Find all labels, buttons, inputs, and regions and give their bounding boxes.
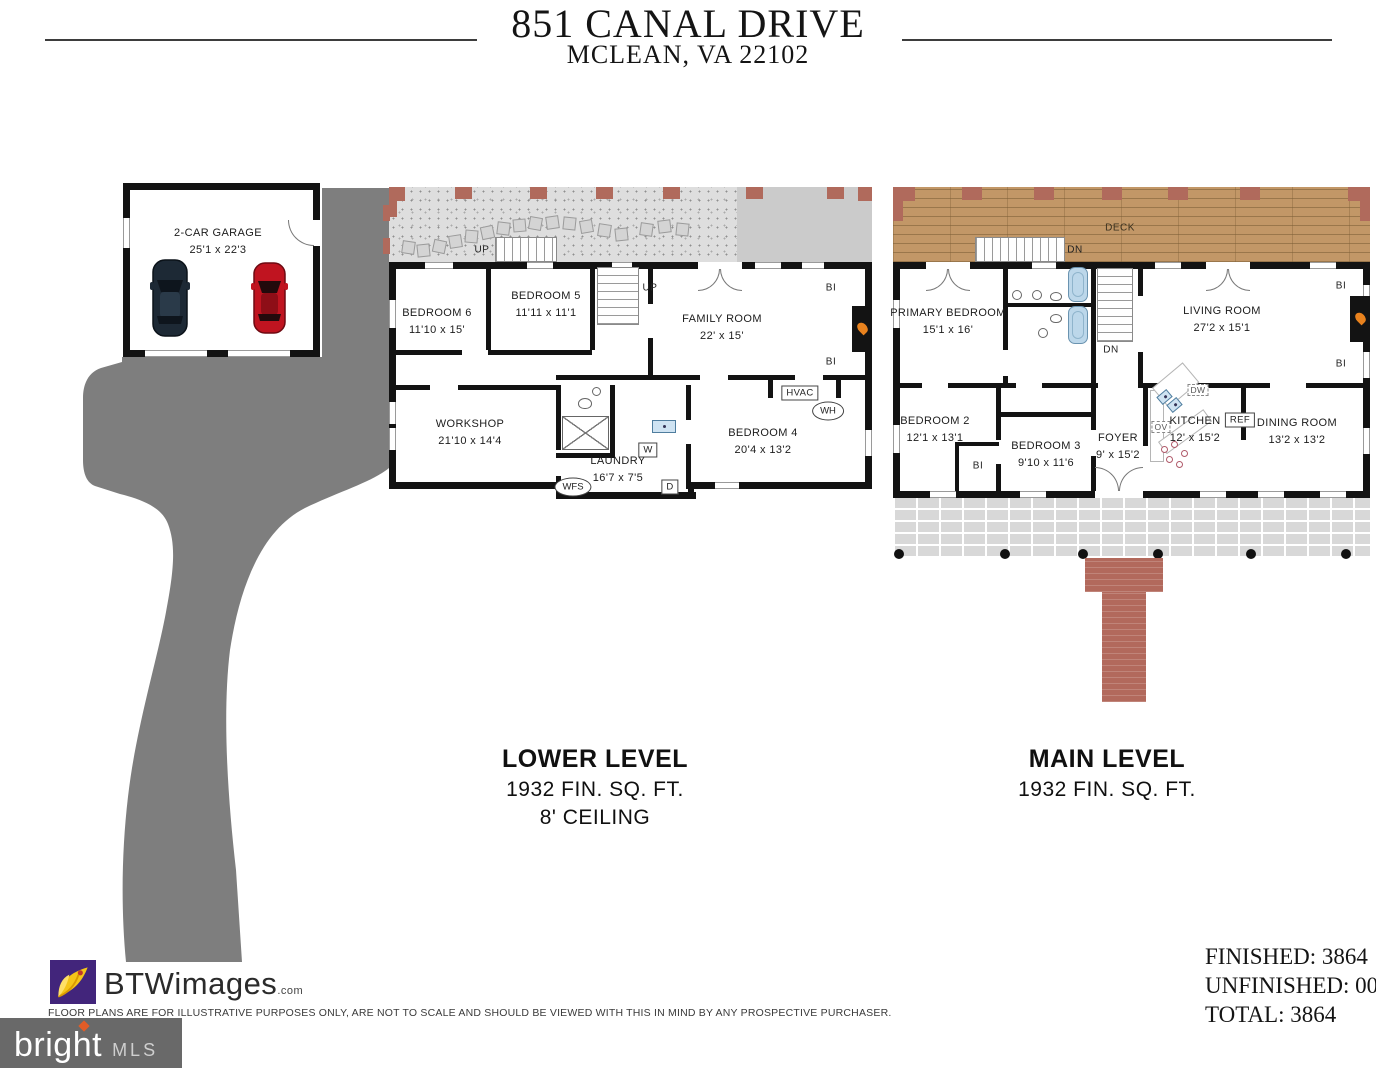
stepping-stone — [657, 219, 671, 233]
stepping-stone — [448, 234, 463, 249]
wall — [1138, 262, 1143, 296]
utility-sink — [652, 420, 676, 433]
window — [865, 430, 872, 456]
room-label: LAUNDRY 16'7 x 7'5 — [590, 453, 645, 487]
garage-label: 2-CAR GARAGE 25'1 x 22'3 — [174, 225, 262, 259]
brick-pillar — [1034, 187, 1054, 200]
window — [1363, 428, 1370, 454]
oven-tag: OV — [1151, 421, 1170, 433]
cooktop-burner — [1166, 456, 1173, 463]
window — [123, 218, 130, 248]
porch-column-dot — [1000, 549, 1010, 559]
hvac-tag: HVAC — [781, 386, 818, 401]
up-label: UP — [475, 245, 490, 256]
window — [1032, 262, 1056, 269]
window — [389, 428, 396, 450]
door-gap — [922, 383, 948, 388]
window — [715, 482, 739, 489]
dishwasher-tag: DW — [1188, 384, 1209, 396]
room-name: 2-CAR GARAGE — [174, 225, 262, 242]
bright-mls-logo: bright MLS — [0, 1018, 182, 1068]
finished-total: FINISHED: 3864 — [1205, 943, 1376, 972]
bathtub — [1068, 306, 1088, 344]
door-gap — [1270, 383, 1306, 388]
refrigerator-tag: REF — [1225, 413, 1255, 428]
brick-pillar — [530, 187, 547, 199]
window — [1200, 491, 1226, 498]
door-gap — [795, 375, 823, 380]
window — [1258, 491, 1284, 498]
room-dims: 9' x 15'2 — [1096, 447, 1140, 464]
washer-tag: W — [638, 443, 657, 458]
cooktop-burner — [1161, 446, 1168, 453]
level-area: 1932 FIN. SQ. FT. — [1018, 778, 1196, 802]
room-dims: 12'1 x 13'1 — [900, 430, 970, 447]
wall — [955, 442, 959, 491]
room-label: FAMILY ROOM 22' x 15' — [682, 311, 762, 345]
room-label: FOYER 9' x 15'2 — [1096, 430, 1140, 464]
window — [1020, 491, 1046, 498]
stepping-stone — [597, 223, 612, 238]
built-in-label: BI — [826, 283, 836, 294]
sink — [1032, 290, 1042, 300]
room-name: PRIMARY BEDROOM — [890, 305, 1006, 322]
room-name: WORKSHOP — [436, 416, 505, 433]
window — [802, 262, 824, 269]
room-label: WORKSHOP 21'10 x 14'4 — [436, 416, 505, 450]
brick-pillar — [383, 205, 390, 221]
door-gap — [430, 385, 458, 390]
room-name: LIVING ROOM — [1183, 303, 1261, 320]
room-name: FOYER — [1096, 430, 1140, 447]
square-footage-totals: FINISHED: 3864 UNFINISHED: 000 TOTAL: 38… — [1205, 943, 1376, 1029]
room-label: BEDROOM 3 9'10 x 11'6 — [1011, 438, 1081, 472]
room-dims: 11'11 x 11'1 — [511, 305, 581, 322]
porch-column-dot — [1341, 549, 1351, 559]
room-dims: 9'10 x 11'6 — [1011, 455, 1081, 472]
front-walkway — [1102, 592, 1146, 702]
brick-pillar — [389, 187, 397, 217]
built-in-label: BI — [826, 357, 836, 368]
room-name: BEDROOM 2 — [900, 413, 970, 430]
toilet — [1050, 292, 1062, 301]
brick-pillar — [663, 187, 680, 199]
wall — [1091, 262, 1096, 388]
built-in-label: BI — [973, 461, 983, 472]
room-name: BEDROOM 4 — [728, 425, 798, 442]
wall — [486, 262, 491, 352]
toilet — [578, 398, 592, 409]
stepping-stone — [639, 222, 654, 237]
room-label: KITCHEN 12' x 15'2 — [1169, 413, 1220, 447]
btw-brand-name: BTWimages — [104, 966, 277, 1001]
brick-pillar — [858, 187, 872, 201]
main-level-caption: MAIN LEVEL 1932 FIN. SQ. FT. — [1018, 745, 1196, 802]
level-title: MAIN LEVEL — [1018, 745, 1196, 774]
room-label: BEDROOM 6 11'10 x 15' — [402, 305, 472, 339]
room-label: BEDROOM 2 12'1 x 13'1 — [900, 413, 970, 447]
exterior-stairs — [495, 237, 557, 262]
window — [389, 300, 396, 328]
room-name: FAMILY ROOM — [682, 311, 762, 328]
up-label: UP — [643, 283, 658, 294]
room-dims: 27'2 x 15'1 — [1183, 320, 1261, 337]
window — [425, 262, 453, 269]
wall — [389, 385, 561, 390]
window — [1310, 262, 1336, 269]
door-gap — [686, 420, 691, 444]
mls-brand-name: bright — [14, 1026, 102, 1065]
window — [930, 491, 956, 498]
interior-stairs — [597, 267, 639, 325]
room-name: BEDROOM 3 — [1011, 438, 1081, 455]
wall — [1143, 388, 1148, 446]
room-dims: 22' x 15' — [682, 328, 762, 345]
grand-total: TOTAL: 3864 — [1205, 1001, 1376, 1030]
deck-label: DECK — [1105, 223, 1135, 234]
room-label: BEDROOM 5 11'11 x 11'1 — [511, 288, 581, 322]
brick-pillar — [383, 238, 390, 254]
flower-icon — [50, 960, 96, 1004]
room-label: PRIMARY BEDROOM 15'1 x 16' — [890, 305, 1006, 339]
mls-brand-text: bright — [14, 1026, 102, 1064]
wall — [648, 338, 653, 378]
door-gap — [313, 220, 320, 246]
stepping-stone — [562, 216, 576, 230]
stepping-stone — [512, 218, 526, 232]
btw-brand-suffix: .com — [277, 985, 303, 997]
wall — [610, 385, 615, 458]
room-label: DINING ROOM 13'2 x 13'2 — [1257, 415, 1337, 449]
room-dims: 13'2 x 13'2 — [1257, 432, 1337, 449]
wall — [893, 262, 900, 498]
brick-pillar — [596, 187, 613, 199]
room-name: KITCHEN — [1169, 413, 1220, 430]
brick-pillar — [827, 187, 844, 199]
wall — [389, 262, 396, 489]
room-dims: 16'7 x 7'5 — [590, 470, 645, 487]
level-title: LOWER LEVEL — [502, 745, 688, 774]
level-ceiling: 8' CEILING — [502, 806, 688, 830]
bathtub — [1068, 267, 1088, 302]
interior-stairs — [1097, 268, 1133, 342]
unfinished-total: UNFINISHED: 000 — [1205, 972, 1376, 1001]
door-gap — [462, 350, 488, 355]
stepping-stone — [545, 215, 560, 230]
window — [1320, 491, 1346, 498]
stepping-stone — [675, 222, 689, 236]
wall — [1001, 412, 1093, 417]
stepping-stone — [432, 239, 447, 254]
room-name: DINING ROOM — [1257, 415, 1337, 432]
brick-pillar — [455, 187, 472, 199]
cooktop-burner — [1181, 450, 1188, 457]
stepping-stone — [528, 216, 543, 231]
brick-pillar — [1102, 187, 1122, 200]
door-gap — [698, 262, 742, 269]
room-name: BEDROOM 5 — [511, 288, 581, 305]
room-name: LAUNDRY — [590, 453, 645, 470]
porch-column-dot — [1246, 549, 1256, 559]
wall — [389, 350, 592, 355]
stepping-stone — [579, 219, 594, 234]
room-dims: 11'10 x 15' — [402, 322, 472, 339]
room-label: LIVING ROOM 27'2 x 15'1 — [1183, 303, 1261, 337]
floor-plan-page: 851 CANAL DRIVE MCLEAN, VA 22102 UP — [0, 0, 1376, 1068]
dryer-tag: D — [661, 480, 678, 495]
dn-label: DN — [1103, 345, 1118, 356]
stepping-stone — [614, 227, 628, 241]
room-dims: 12' x 15'2 — [1169, 430, 1220, 447]
room-dims: 15'1 x 16' — [890, 322, 1006, 339]
garage-door — [228, 350, 290, 357]
brick-pillar — [962, 187, 982, 200]
wfs-tag: WFS — [554, 478, 591, 497]
shower — [562, 416, 609, 450]
mls-suffix-text: MLS — [112, 1040, 158, 1061]
porch-column-dot — [894, 549, 904, 559]
front-walkway — [1085, 558, 1163, 592]
room-label: BEDROOM 4 20'4 x 13'2 — [728, 425, 798, 459]
window — [893, 425, 900, 453]
room-dims: 20'4 x 13'2 — [728, 442, 798, 459]
brick-pillar — [1240, 187, 1260, 200]
window — [1363, 352, 1370, 378]
car-dark — [150, 258, 190, 338]
wall — [768, 380, 773, 398]
deck-stairs — [975, 237, 1065, 262]
window — [527, 262, 553, 269]
brick-pillar — [893, 187, 903, 221]
sink — [1012, 290, 1022, 300]
stepping-stone — [480, 225, 495, 240]
stepping-stone — [464, 229, 478, 243]
sink — [592, 387, 601, 396]
stepping-stone — [416, 243, 430, 257]
door-gap — [1016, 383, 1042, 388]
brick-pillar — [1360, 187, 1370, 221]
window — [755, 262, 781, 269]
window — [389, 402, 396, 424]
btw-brand: BTWimages.com — [104, 966, 303, 1002]
sink — [1038, 328, 1048, 338]
garage-door — [145, 350, 207, 357]
water-heater-tag: WH — [812, 402, 844, 421]
level-area: 1932 FIN. SQ. FT. — [502, 778, 688, 802]
window — [1155, 262, 1181, 269]
room-name: BEDROOM 6 — [402, 305, 472, 322]
door-gap — [926, 262, 970, 269]
stepping-stone — [496, 221, 510, 235]
built-in-label: BI — [1336, 359, 1346, 370]
room-dims: 21'10 x 14'4 — [436, 433, 505, 450]
cooktop-burner — [1176, 461, 1183, 468]
brick-pillar — [1168, 187, 1188, 200]
lower-level-caption: LOWER LEVEL 1932 FIN. SQ. FT. 8' CEILING — [502, 745, 688, 830]
door-gap — [1206, 262, 1250, 269]
stepping-stone — [401, 240, 416, 255]
btw-logo-icon — [50, 960, 96, 1004]
built-in-label: BI — [1336, 281, 1346, 292]
dn-label: DN — [1067, 245, 1082, 256]
brick-pillar — [746, 187, 763, 199]
car-red — [251, 261, 288, 335]
door-gap — [700, 375, 728, 380]
wall — [590, 262, 595, 350]
door-gap — [1003, 350, 1008, 376]
room-dims: 25'1 x 22'3 — [174, 242, 262, 259]
front-porch — [893, 498, 1370, 558]
wall — [389, 482, 560, 489]
wall — [836, 380, 841, 398]
toilet — [1050, 314, 1062, 323]
front-door-gap — [1095, 491, 1143, 498]
